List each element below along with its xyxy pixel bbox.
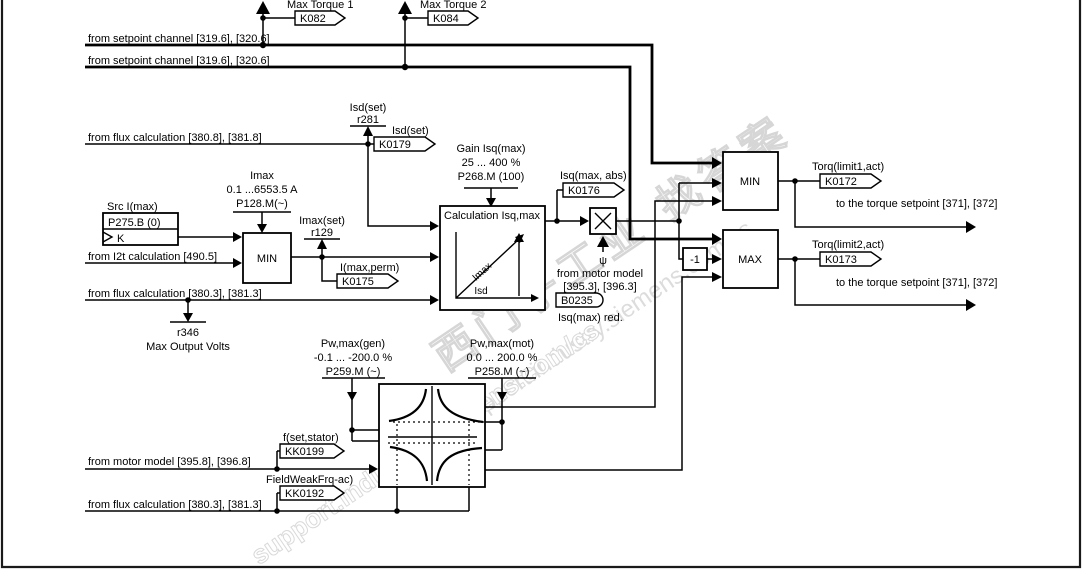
- connector-id-k0176: K0176: [568, 185, 600, 197]
- psi-source-line2: [395.3], [396.3]: [563, 281, 636, 293]
- k0173-signal-label: Torq(limit2,act): [812, 239, 884, 251]
- display-r346: r346 Max Output Volts: [146, 327, 230, 353]
- calc-isqmax-block: Calculation Isq,max Imax Isd: [440, 206, 545, 310]
- p268-name: Gain Isq(max): [456, 143, 525, 155]
- input-label-setpoint2: from setpoint channel [319.6], [320.6]: [88, 55, 270, 67]
- display-r281: Isd(set) r281: [350, 102, 387, 126]
- isqmax-red-note: Isq(max) red.: [558, 312, 623, 324]
- r281-display-arrow-icon: [363, 126, 373, 136]
- connector-id-k082: K082: [300, 13, 326, 25]
- p258-range: 0.0 ... 200.0 %: [467, 352, 538, 364]
- max-torque2-up-arrow-icon: [398, 1, 412, 14]
- k0175-signal-label: I(max,perm): [340, 262, 399, 274]
- display-r129: Imax(set) r129: [299, 215, 345, 239]
- p128-id: P128.M(~): [236, 198, 288, 210]
- r281-id-label: r281: [357, 114, 379, 126]
- k0172-signal-label: Torq(limit1,act): [812, 161, 884, 173]
- connector-id-k0172: K0172: [825, 176, 857, 188]
- connector-k0179: Isd(set) K0179: [374, 125, 435, 151]
- k0173-destination-label: to the torque setpoint [371], [372]: [836, 277, 997, 289]
- connector-k0173: Torq(limit2,act) K0173 to the torque set…: [812, 239, 997, 289]
- multiplier-block: [590, 208, 616, 234]
- param-p259: Pw,max(gen) -0.1 ... -200.0 % P259.M (~): [314, 338, 392, 378]
- invert-block-label: -1: [690, 254, 700, 266]
- p259-name: Pw,max(gen): [321, 338, 385, 350]
- p259-range: -0.1 ... -200.0 %: [314, 352, 392, 364]
- p268-id: P268.M (100): [458, 171, 525, 183]
- max-torque-block-label: MAX: [738, 254, 763, 266]
- connector-kk0199: f(set,stator) KK0199: [280, 432, 344, 458]
- connector-id-kk0192: KK0192: [285, 488, 324, 500]
- psi-source-line1: from motor model: [557, 268, 643, 280]
- param-p258: Pw,max(mot) 0.0 ... 200.0 % P258.M (~): [467, 338, 538, 378]
- input-label-flux-lo2: from flux calculation [380.3], [381.3]: [88, 499, 262, 511]
- r346-display-arrow-icon: [183, 313, 193, 322]
- diagram-canvas: 西门子工业 找答案 support.industry.siemens.com/c…: [0, 0, 1082, 579]
- r129-id-label: r129: [311, 227, 333, 239]
- connector-id-kk0199: KK0199: [285, 446, 324, 458]
- psi-symbol: ψ: [599, 255, 607, 267]
- connector-k0175: I(max,perm) K0175: [337, 262, 399, 288]
- max-torque-1-label: Max Torque 1: [287, 0, 353, 11]
- r129-signal-label: Imax(set): [299, 215, 345, 227]
- r346-name-label: Max Output Volts: [146, 341, 230, 353]
- p128-param-arrow-icon: [257, 224, 267, 233]
- kk0192-signal-label: FieldWeakFrq-ac): [266, 474, 353, 486]
- min-torque-block-label: MIN: [740, 176, 760, 188]
- p128-range: 0.1 ...6553.5 A: [227, 184, 299, 196]
- max-torque-2-output: Max Torque 2 K084: [420, 0, 486, 25]
- p259-id: P259.M (~): [326, 366, 381, 378]
- connector-id-k0173: K0173: [825, 254, 857, 266]
- max-torque-2-label: Max Torque 2: [420, 0, 486, 11]
- param-p268: Gain Isq(max) 25 ... 400 % P268.M (100): [456, 143, 525, 183]
- binector-id-b0235: B0235: [561, 295, 593, 307]
- p258-id: P258.M (~): [475, 366, 530, 378]
- k0176-signal-label: Isq(max, abs): [560, 170, 627, 182]
- p258-name: Pw,max(mot): [470, 338, 534, 350]
- power-limit-characteristic-block: [379, 384, 485, 487]
- src-imax-k: K: [117, 233, 125, 245]
- max-torque-1-output: Max Torque 1 K082: [287, 0, 353, 25]
- param-p128: Imax 0.1 ...6553.5 A P128.M(~): [227, 170, 299, 210]
- min-current-block-label: MIN: [257, 253, 277, 265]
- input-label-setpoint1: from setpoint channel [319.6], [320.6]: [88, 33, 270, 45]
- input-label-flux-lo1: from flux calculation [380.3], [381.3]: [88, 288, 262, 300]
- connector-k0172: Torq(limit1,act) K0172 to the torque set…: [812, 161, 997, 210]
- calc-isd-axis-label: Isd: [474, 286, 487, 297]
- p259-param-arrow-icon: [347, 392, 357, 401]
- source-selector-p275: Src I(max) P275.B (0) K: [103, 201, 178, 245]
- k0179-signal-label: Isd(set): [392, 125, 429, 137]
- k0172-destination-label: to the torque setpoint [371], [372]: [836, 198, 997, 210]
- input-label-flux-hi: from flux calculation [380.8], [381.8]: [88, 132, 262, 144]
- p128-name: Imax: [250, 170, 274, 182]
- connector-id-k084: K084: [433, 13, 459, 25]
- connector-id-k0175: K0175: [342, 276, 374, 288]
- connector-id-k0179: K0179: [379, 139, 411, 151]
- max-torque1-up-arrow-icon: [256, 1, 270, 14]
- function-diagram-page: 西门子工业 找答案 support.industry.siemens.com/c…: [0, 0, 1082, 579]
- connector-k0176: Isq(max, abs) K0176: [560, 170, 627, 197]
- src-imax-label: Src I(max): [107, 201, 158, 213]
- r129-display-arrow-icon: [317, 239, 327, 249]
- r281-signal-label: Isd(set): [350, 102, 387, 114]
- calc-block-title: Calculation Isq,max: [444, 210, 540, 222]
- src-imax-param: P275.B (0): [108, 217, 161, 229]
- r346-id-label: r346: [177, 327, 199, 339]
- input-label-i2t: from I2t calculation [490.5]: [88, 251, 217, 263]
- input-label-motor-model: from motor model [395.8], [396.8]: [88, 456, 251, 468]
- kk0199-signal-label: f(set,stator): [283, 432, 339, 444]
- p268-range: 25 ... 400 %: [462, 157, 521, 169]
